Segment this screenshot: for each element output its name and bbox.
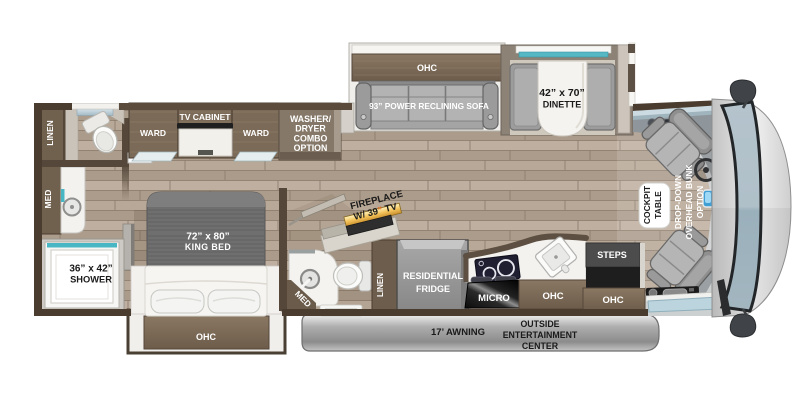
svg-text:MICRO: MICRO <box>478 293 510 304</box>
svg-text:RESIDENTIAL: RESIDENTIAL <box>403 271 464 281</box>
svg-text:COCKPIT: COCKPIT <box>642 185 652 224</box>
svg-text:TABLE: TABLE <box>653 191 663 219</box>
svg-text:LINEN: LINEN <box>45 120 55 146</box>
svg-text:SHOWER: SHOWER <box>70 275 112 285</box>
svg-text:WARD: WARD <box>243 128 269 138</box>
svg-text:LINEN: LINEN <box>376 273 385 297</box>
svg-text:WARD: WARD <box>140 128 166 138</box>
svg-text:17’ AWNING: 17’ AWNING <box>431 327 485 338</box>
svg-text:OHC: OHC <box>417 63 438 73</box>
svg-text:FRIDGE: FRIDGE <box>416 284 450 294</box>
svg-text:DROP-DOWN: DROP-DOWN <box>673 175 683 229</box>
svg-text:72” x 80”: 72” x 80” <box>186 232 229 243</box>
svg-text:93” POWER RECLINING SOFA: 93” POWER RECLINING SOFA <box>369 101 489 111</box>
svg-text:CENTER: CENTER <box>522 341 559 351</box>
svg-text:OPTION: OPTION <box>695 186 705 219</box>
svg-text:OPTION: OPTION <box>294 143 328 153</box>
svg-text:STEPS: STEPS <box>597 250 627 260</box>
svg-text:COMBO: COMBO <box>294 133 328 143</box>
svg-text:DRYER: DRYER <box>295 124 326 134</box>
svg-text:DINETTE: DINETTE <box>543 100 582 110</box>
svg-text:ENTERTAINMENT: ENTERTAINMENT <box>503 330 578 340</box>
svg-text:OHC: OHC <box>542 291 563 302</box>
svg-text:OHC: OHC <box>196 332 217 342</box>
svg-text:WASHER/: WASHER/ <box>290 114 332 124</box>
svg-text:OUTSIDE: OUTSIDE <box>520 319 559 329</box>
svg-text:OHC: OHC <box>602 295 623 306</box>
svg-text:MED: MED <box>43 190 53 209</box>
svg-text:42” x 70”: 42” x 70” <box>539 87 585 99</box>
svg-text:TV CABINET: TV CABINET <box>180 112 232 122</box>
svg-text:KING BED: KING BED <box>185 242 231 252</box>
svg-text:OVERHEAD BUNK: OVERHEAD BUNK <box>684 164 694 240</box>
svg-text:36” x 42”: 36” x 42” <box>69 264 112 275</box>
